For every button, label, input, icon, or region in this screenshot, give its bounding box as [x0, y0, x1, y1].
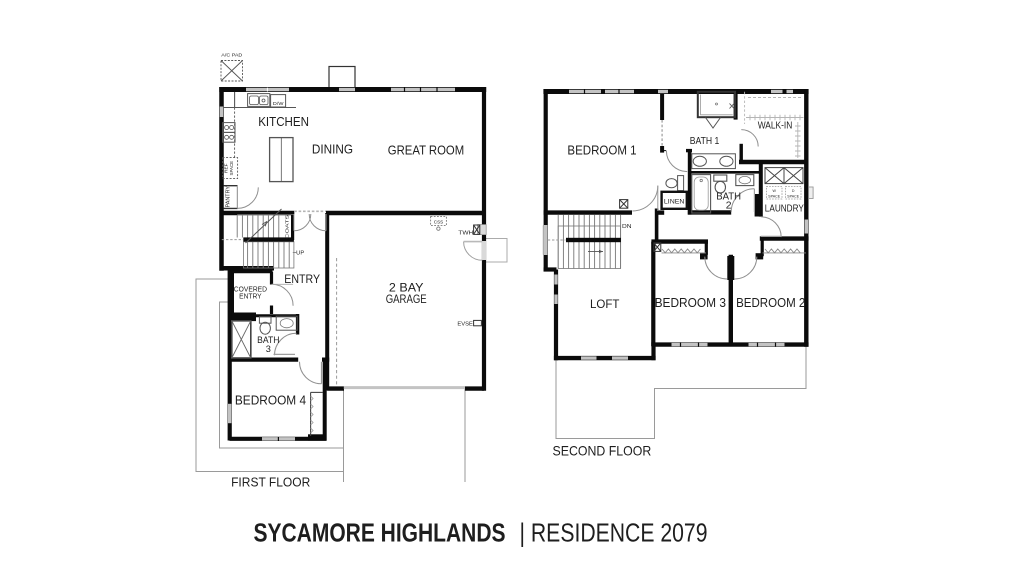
svg-text:PANTRY: PANTRY: [225, 185, 231, 207]
svg-text:WALK-IN: WALK-IN: [758, 120, 793, 131]
svg-text:BEDROOM 1: BEDROOM 1: [567, 144, 636, 158]
svg-text:ENTRY: ENTRY: [284, 273, 320, 286]
svg-text:DN: DN: [622, 224, 632, 230]
svg-text:GREAT ROOM: GREAT ROOM: [388, 143, 464, 157]
svg-text:SPACE: SPACE: [787, 194, 800, 198]
svg-text:REF: REF: [224, 163, 229, 173]
svg-text:SPACE: SPACE: [768, 194, 781, 198]
svg-text:KITCHEN: KITCHEN: [258, 115, 309, 129]
svg-text:TWH: TWH: [458, 230, 473, 236]
svg-text:LOFT: LOFT: [590, 297, 620, 311]
svg-text:LINEN: LINEN: [664, 199, 685, 206]
svg-text:2: 2: [726, 201, 732, 212]
svg-text:D/W: D/W: [273, 101, 284, 106]
svg-text:BATH 1: BATH 1: [690, 136, 720, 147]
svg-text:DINING: DINING: [312, 142, 353, 156]
svg-text:UP: UP: [296, 250, 304, 256]
svg-text:BEDROOM 3: BEDROOM 3: [655, 296, 726, 310]
svg-text:EVSE: EVSE: [457, 322, 473, 328]
svg-text:3: 3: [266, 344, 271, 354]
svg-text:BEDROOM 2: BEDROOM 2: [736, 296, 805, 310]
svg-text:FIRST FLOOR: FIRST FLOOR: [231, 475, 310, 490]
svg-text:CSS: CSS: [434, 219, 444, 224]
svg-text:GARAGE: GARAGE: [386, 292, 427, 306]
svg-text:D: D: [792, 189, 795, 193]
svg-text:SYCAMORE HIGHLANDS| RESIDENCE: SYCAMORE HIGHLANDS| RESIDENCE 2079: [254, 520, 708, 548]
svg-text:LAUNDRY: LAUNDRY: [765, 203, 804, 214]
svg-text:BEDROOM 4: BEDROOM 4: [235, 394, 306, 408]
svg-text:W: W: [772, 189, 776, 193]
svg-text:ENTRY: ENTRY: [239, 291, 262, 300]
svg-text:COATS: COATS: [284, 214, 290, 239]
svg-text:A/C PAD: A/C PAD: [221, 53, 242, 59]
svg-text:SPACE: SPACE: [229, 161, 234, 176]
svg-text:SECOND FLOOR: SECOND FLOOR: [553, 444, 652, 459]
